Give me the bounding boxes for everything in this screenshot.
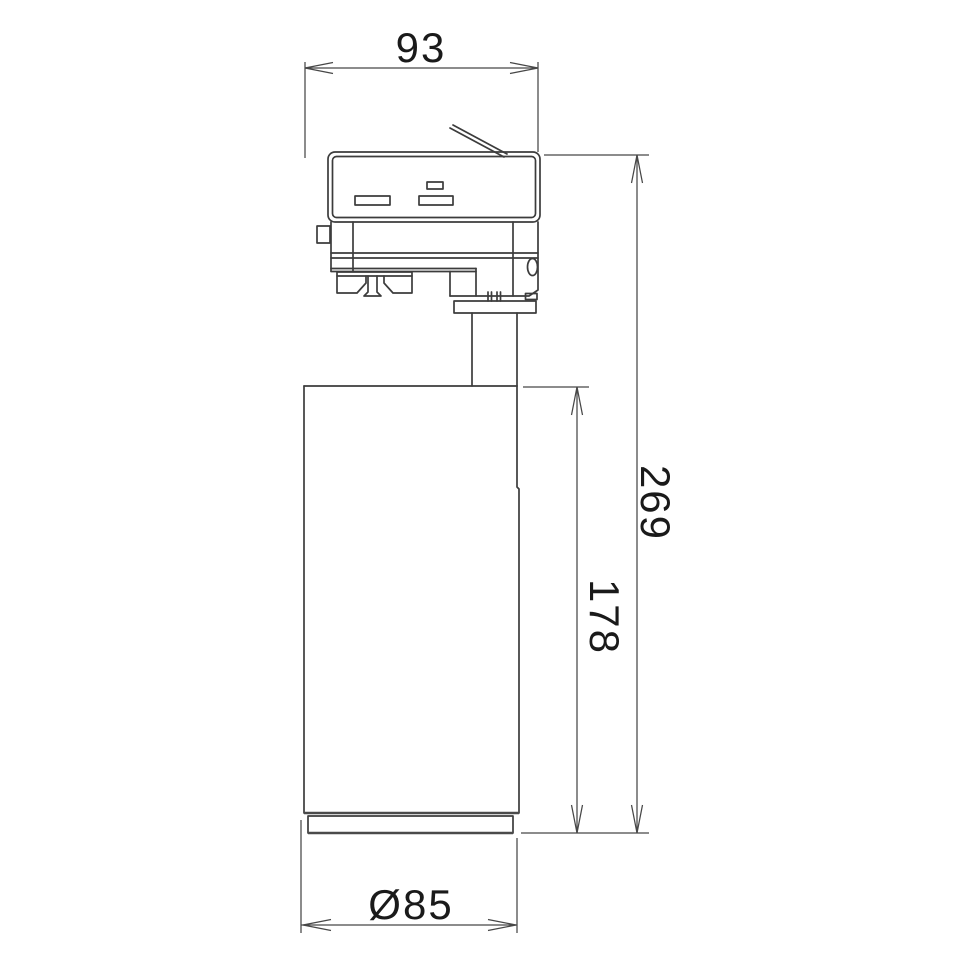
dim-label-overall-height: 269 [632,465,679,541]
adapter-left-tab [317,226,330,243]
dim-housing-height: 178 [521,387,649,833]
adapter-slot-left [355,196,390,205]
dim-label-diameter: Ø85 [368,881,453,928]
adapter-top-housing-outer [328,152,540,222]
adapter-slot-right [419,196,453,205]
dim-housing-diameter: Ø85 [301,820,517,933]
dim-adapter-width: 93 [305,24,538,158]
adapter-mid-body [317,222,538,300]
adapter-side-oval-hole [528,259,538,276]
housing-trim-ring [308,816,513,833]
adapter-top-housing-inner [333,157,536,218]
technical-drawing-page: 93 269 178 Ø85 [0,0,970,971]
adapter-contact-claw [337,272,412,296]
dimension-drawing: 93 269 178 Ø85 [0,0,970,971]
dim-label-width: 93 [396,24,447,71]
track-adapter [317,125,540,386]
lamp-housing [304,386,519,833]
stem-flange [454,301,536,313]
suspension-stem [472,313,517,386]
dim-label-housing-height: 178 [581,579,628,655]
adapter-slot-small [427,182,443,189]
dim-overall-height: 269 [544,155,679,833]
